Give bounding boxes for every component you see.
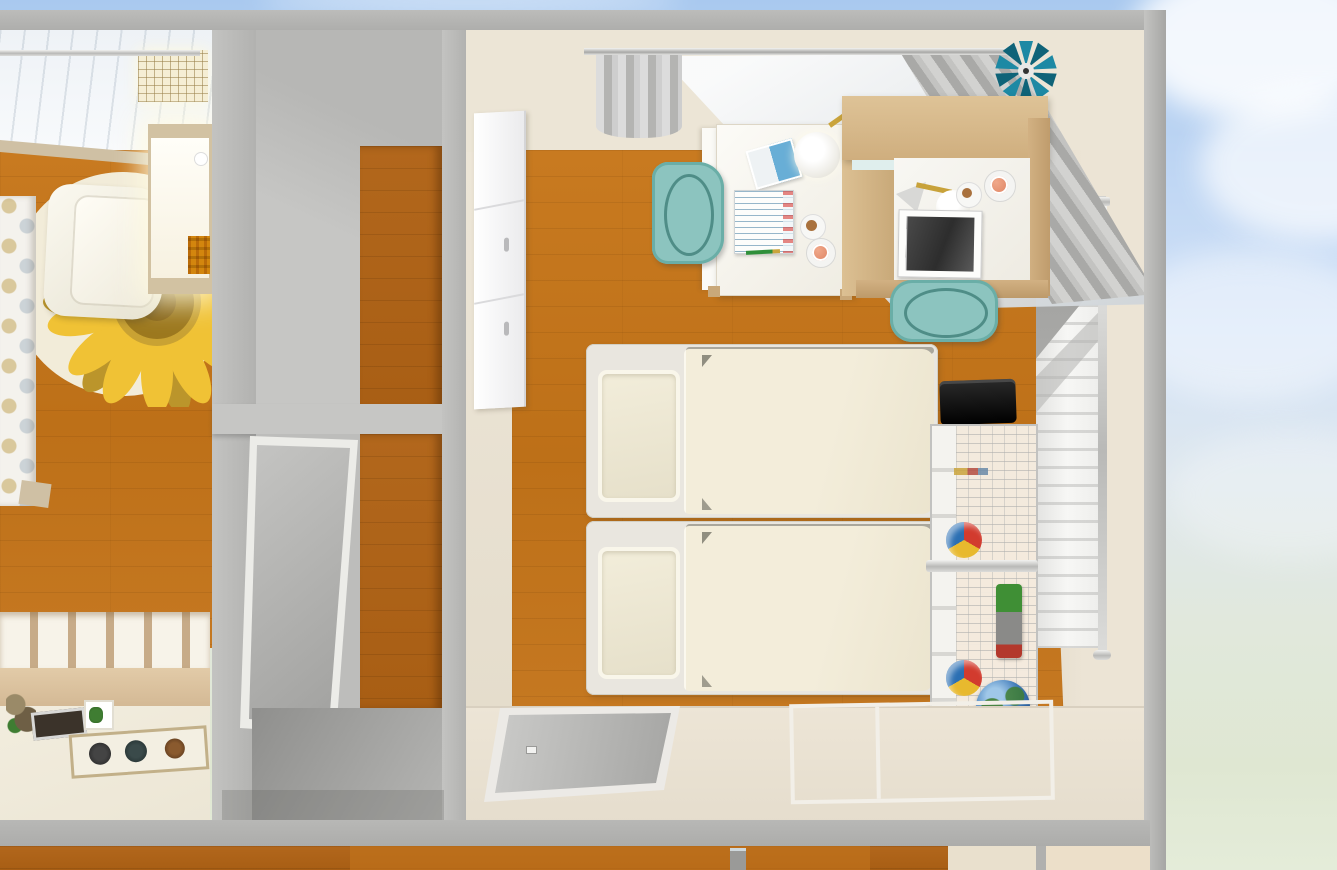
bed-duvet bbox=[684, 349, 934, 514]
bed-pillow bbox=[598, 547, 680, 679]
hallway-beam bbox=[212, 404, 478, 434]
twin-bed-upper[interactable] bbox=[586, 344, 938, 518]
sofa-seat bbox=[69, 194, 159, 308]
teal-chair-right[interactable] bbox=[890, 280, 998, 342]
board-burner bbox=[124, 739, 147, 762]
cloud bbox=[1170, 430, 1337, 560]
notebook-tab-column bbox=[783, 191, 793, 253]
wardrobe-divider bbox=[474, 293, 524, 305]
notebook[interactable] bbox=[734, 190, 794, 254]
blind-rail-cap-bottom bbox=[1093, 650, 1111, 660]
twin-bed-lower[interactable] bbox=[586, 521, 938, 695]
outer-wall-right bbox=[1144, 10, 1166, 870]
curtain-rod-playroom[interactable] bbox=[0, 50, 200, 56]
cubby-shelf-top[interactable] bbox=[0, 612, 210, 668]
wardrobe-handle[interactable] bbox=[504, 238, 509, 252]
beech-desk-hutch[interactable] bbox=[842, 96, 1048, 160]
desk-leg bbox=[708, 286, 720, 297]
duvet-fold-notch bbox=[702, 498, 712, 510]
teal-chair-left[interactable] bbox=[652, 162, 724, 264]
board-burner bbox=[88, 742, 111, 765]
duvet-fold-notch bbox=[702, 532, 712, 544]
plaid-cushion[interactable] bbox=[188, 236, 210, 274]
bed-pillow bbox=[598, 370, 680, 502]
lower-strip-beige bbox=[1046, 846, 1150, 870]
board-burner bbox=[164, 738, 185, 759]
bed-duvet bbox=[684, 526, 934, 691]
wardrobe-handle[interactable] bbox=[504, 322, 509, 336]
outer-wall-top bbox=[0, 10, 1166, 30]
cookie-right bbox=[962, 188, 972, 198]
beech-desk-right-panel bbox=[1028, 118, 1050, 296]
rack-shelf-band bbox=[926, 560, 1038, 572]
toy-truck[interactable] bbox=[996, 584, 1022, 658]
toy-ball-lower[interactable] bbox=[946, 660, 982, 696]
mug-left bbox=[812, 244, 829, 261]
wood-door-panel-lower bbox=[360, 434, 442, 710]
duvet-fold-notch bbox=[702, 675, 712, 687]
toy-box-plant bbox=[89, 707, 103, 723]
lower-strip-seam bbox=[1036, 846, 1046, 870]
outer-wall-bottom bbox=[0, 820, 1150, 846]
photo-book[interactable] bbox=[897, 209, 982, 278]
rack-toy-bits bbox=[954, 468, 988, 475]
photo-book-image bbox=[906, 216, 975, 271]
table-cup[interactable] bbox=[194, 152, 208, 166]
toy-ball-upper[interactable] bbox=[946, 522, 982, 558]
hallway-wall-right bbox=[442, 28, 466, 822]
wardrobe-divider bbox=[474, 199, 524, 211]
lower-strip-object bbox=[730, 848, 746, 870]
white-wardrobe[interactable] bbox=[474, 111, 526, 410]
toy-box[interactable] bbox=[84, 700, 114, 730]
black-case[interactable] bbox=[939, 379, 1016, 426]
door-frame-mullion bbox=[875, 707, 881, 799]
cookie-left bbox=[806, 220, 817, 231]
chair-back-curve bbox=[904, 288, 988, 338]
duvet-fold-notch bbox=[702, 355, 712, 367]
pinwheel-ornament[interactable] bbox=[986, 40, 1066, 102]
scene bbox=[0, 0, 1337, 870]
mug-right bbox=[990, 176, 1008, 194]
lower-strip-light-wood bbox=[350, 846, 870, 870]
door-handle bbox=[526, 746, 537, 754]
curtain-rod-bedroom[interactable] bbox=[584, 48, 1012, 55]
chair-back-curve bbox=[664, 174, 714, 256]
desk-lamp-left[interactable] bbox=[794, 132, 840, 178]
outer-wall-bottom-shadow bbox=[222, 790, 444, 820]
polka-dot-curtain[interactable] bbox=[0, 196, 36, 506]
ceiling-light-panel bbox=[138, 50, 208, 102]
wood-door-panel-upper[interactable] bbox=[360, 146, 442, 422]
sliding-door-frame-right[interactable] bbox=[789, 700, 1055, 805]
gray-curtain-left[interactable] bbox=[596, 53, 682, 138]
curtain-bracket bbox=[18, 480, 51, 508]
lower-strip-beige bbox=[948, 846, 1036, 870]
